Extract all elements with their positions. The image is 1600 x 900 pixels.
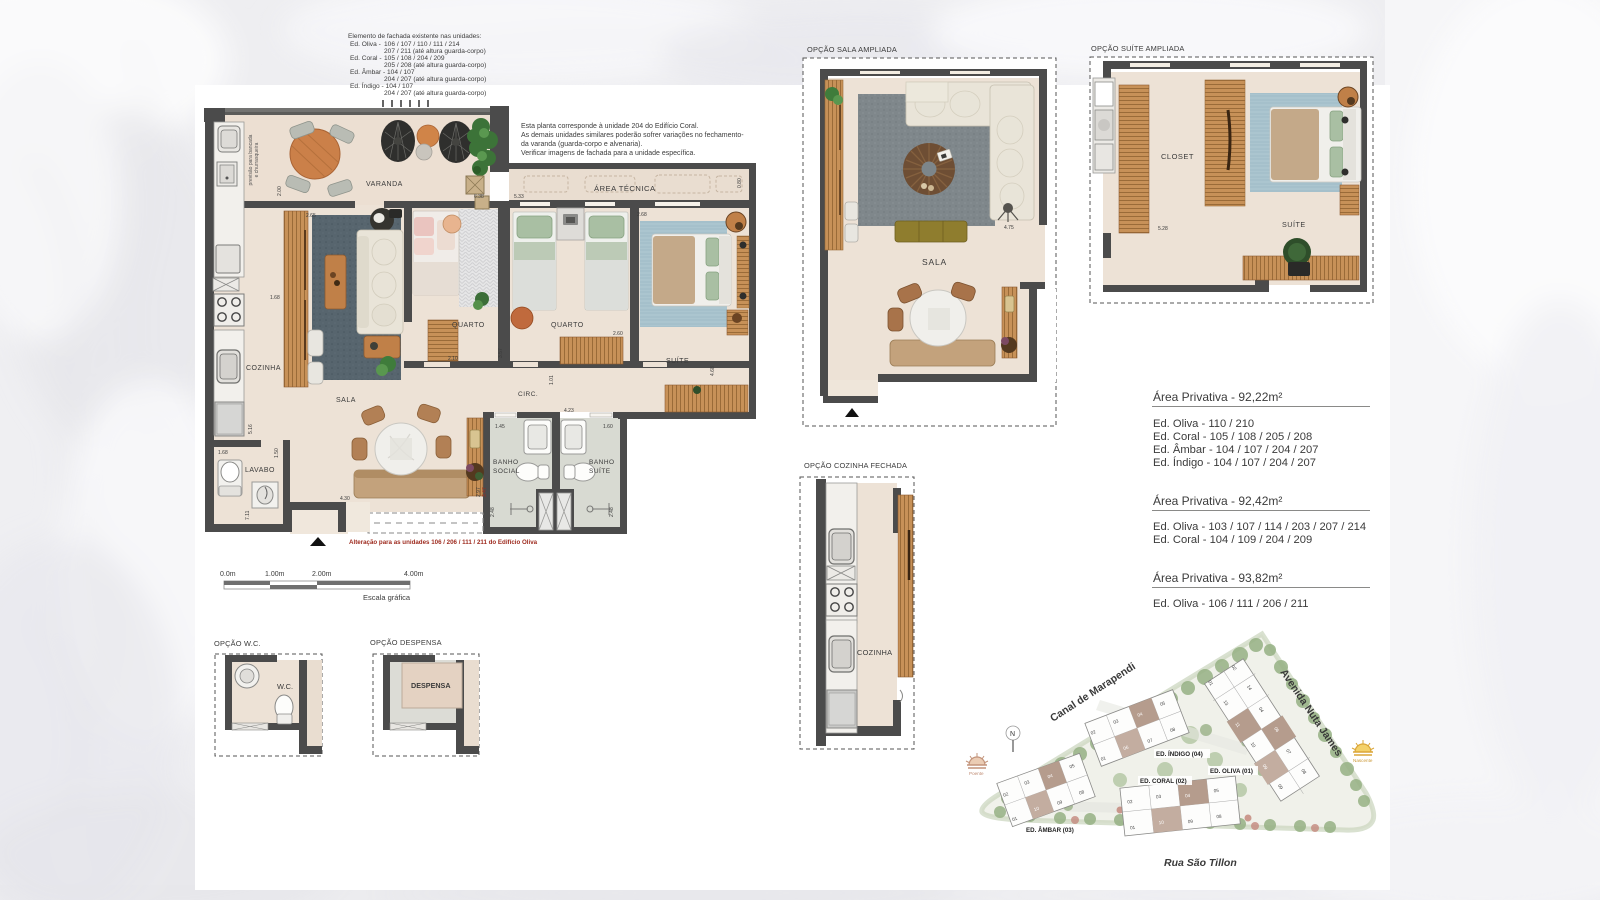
svg-text:SALA: SALA bbox=[922, 257, 947, 267]
svg-text:N: N bbox=[1010, 731, 1015, 738]
svg-text:5.28: 5.28 bbox=[1158, 226, 1168, 232]
svg-text:4.00m: 4.00m bbox=[404, 571, 424, 578]
svg-text:Escala gráfica: Escala gráfica bbox=[363, 593, 411, 602]
svg-text:0.0m: 0.0m bbox=[220, 571, 236, 578]
svg-text:05: 05 bbox=[1213, 788, 1219, 794]
svg-text:2.65: 2.65 bbox=[306, 213, 316, 219]
svg-text:2.60: 2.60 bbox=[613, 331, 623, 337]
svg-text:Ed. Coral - 104 / 109 / 204 /: Ed. Coral - 104 / 109 / 204 / 209 bbox=[1153, 534, 1312, 546]
svg-text:03: 03 bbox=[1156, 794, 1162, 800]
svg-text:Ed. Oliva - 110 / 210: Ed. Oliva - 110 / 210 bbox=[1153, 418, 1254, 430]
svg-text:4.75: 4.75 bbox=[1004, 225, 1014, 231]
svg-text:204 / 207 (até altura guarda-c: 204 / 207 (até altura guarda-corpo) bbox=[384, 90, 486, 97]
svg-text:4.30: 4.30 bbox=[340, 496, 350, 502]
svg-text:SUÍTE: SUÍTE bbox=[589, 466, 611, 475]
svg-text:0.80: 0.80 bbox=[737, 178, 743, 188]
svg-text:COZINHA: COZINHA bbox=[246, 365, 281, 372]
svg-text:Ed. Índigo - 104 / 107: Ed. Índigo - 104 / 107 bbox=[350, 81, 413, 90]
svg-text:ED. OLIVA (01): ED. OLIVA (01) bbox=[1210, 768, 1253, 775]
svg-text:CLOSET: CLOSET bbox=[1161, 152, 1194, 161]
svg-text:01: 01 bbox=[1130, 825, 1136, 831]
svg-text:W.C.: W.C. bbox=[277, 682, 293, 691]
svg-text:3.57: 3.57 bbox=[498, 348, 504, 358]
svg-text:3.47: 3.47 bbox=[482, 487, 488, 497]
svg-text:Área Privativa - 92,22m²: Área Privativa - 92,22m² bbox=[1153, 389, 1282, 404]
svg-text:SOCIAL: SOCIAL bbox=[493, 468, 520, 475]
svg-text:1.00m: 1.00m bbox=[265, 571, 285, 578]
svg-text:5.16: 5.16 bbox=[248, 424, 254, 434]
svg-text:2.00m: 2.00m bbox=[312, 571, 332, 578]
svg-text:1.68: 1.68 bbox=[270, 295, 280, 301]
svg-text:4.23: 4.23 bbox=[564, 408, 574, 414]
svg-text:Elemento de fachada existente: Elemento de fachada existente nas unidad… bbox=[348, 33, 482, 40]
svg-text:OPÇÃO W.C.: OPÇÃO W.C. bbox=[214, 639, 261, 648]
svg-text:4.68: 4.68 bbox=[710, 366, 716, 376]
svg-text:Ed. Índigo - 104 / 107 / 204 /: Ed. Índigo - 104 / 107 / 204 / 207 bbox=[1153, 456, 1316, 469]
svg-text:e churrasqueira: e churrasqueira bbox=[254, 142, 260, 177]
svg-text:Nascente: Nascente bbox=[1353, 758, 1373, 763]
svg-text:SUÍTE: SUÍTE bbox=[666, 356, 689, 365]
svg-text:Alteração para as unidades 106: Alteração para as unidades 106 / 206 / 1… bbox=[349, 539, 538, 546]
svg-text:Poente: Poente bbox=[969, 771, 984, 776]
svg-text:COZINHA: COZINHA bbox=[857, 648, 892, 657]
svg-text:Ed. Oliva - 106 / 111 / 206 /: Ed. Oliva - 106 / 111 / 206 / 211 bbox=[1153, 598, 1308, 610]
svg-text:Ed. Coral - 105 / 108 / 205 /: Ed. Coral - 105 / 108 / 205 / 208 bbox=[1153, 431, 1312, 443]
svg-text:6.38: 6.38 bbox=[474, 194, 484, 200]
svg-text:OPÇÃO SALA AMPLIADA: OPÇÃO SALA AMPLIADA bbox=[807, 45, 897, 54]
svg-text:CIRC.: CIRC. bbox=[518, 391, 538, 398]
svg-text:10: 10 bbox=[1158, 820, 1164, 826]
svg-text:7.11: 7.11 bbox=[245, 510, 251, 520]
svg-text:1.01: 1.01 bbox=[549, 375, 555, 385]
svg-text:207 / 211 (até altura guarda-c: 207 / 211 (até altura guarda-corpo) bbox=[384, 48, 486, 55]
svg-text:Ed. Oliva - 103 / 107 / 114 /: Ed. Oliva - 103 / 107 / 114 / 203 / 207 … bbox=[1153, 521, 1366, 533]
svg-text:ED. CORAL (02): ED. CORAL (02) bbox=[1140, 778, 1187, 785]
svg-text:09: 09 bbox=[1188, 819, 1194, 825]
svg-text:DESPENSA: DESPENSA bbox=[411, 681, 451, 690]
svg-text:08: 08 bbox=[1216, 814, 1222, 820]
svg-text:QUARTO: QUARTO bbox=[452, 322, 485, 329]
svg-text:ED. ÂMBAR (03): ED. ÂMBAR (03) bbox=[1026, 827, 1074, 834]
svg-text:2.68: 2.68 bbox=[637, 212, 647, 218]
svg-text:da varanda (guarda-corpo e alv: da varanda (guarda-corpo e alvenaria). bbox=[521, 141, 642, 148]
svg-text:5.33: 5.33 bbox=[514, 194, 524, 200]
svg-text:Verificar imagens de fachada p: Verificar imagens de fachada para a unid… bbox=[521, 150, 695, 157]
svg-text:Ed. Âmbar - 104 / 107: Ed. Âmbar - 104 / 107 bbox=[350, 67, 415, 76]
svg-text:2.48: 2.48 bbox=[490, 507, 496, 517]
svg-text:OPÇÃO SUÍTE AMPLIADA: OPÇÃO SUÍTE AMPLIADA bbox=[1091, 44, 1185, 53]
svg-text:SUÍTE: SUÍTE bbox=[1282, 220, 1306, 229]
svg-text:1.60: 1.60 bbox=[603, 424, 613, 430]
svg-text:LAVABO: LAVABO bbox=[245, 467, 275, 474]
svg-text:Rua São Tillon: Rua São Tillon bbox=[1164, 857, 1237, 869]
svg-text:2.10: 2.10 bbox=[448, 356, 458, 362]
svg-text:106 / 107 / 110 / 111 / 214: 106 / 107 / 110 / 111 / 214 bbox=[384, 41, 460, 48]
svg-text:Área Privativa - 92,42m²: Área Privativa - 92,42m² bbox=[1153, 493, 1282, 508]
svg-text:205 / 208 (até altura guarda-c: 205 / 208 (até altura guarda-corpo) bbox=[384, 62, 486, 69]
svg-text:1.50: 1.50 bbox=[274, 448, 280, 458]
svg-text:OPÇÃO DESPENSA: OPÇÃO DESPENSA bbox=[370, 638, 442, 647]
svg-text:02: 02 bbox=[1127, 799, 1133, 805]
svg-text:QUARTO: QUARTO bbox=[551, 322, 584, 329]
svg-text:04: 04 bbox=[1185, 793, 1191, 799]
svg-text:Área Privativa - 93,82m²: Área Privativa - 93,82m² bbox=[1153, 570, 1282, 585]
svg-text:OPÇÃO COZINHA FECHADA: OPÇÃO COZINHA FECHADA bbox=[804, 461, 907, 470]
svg-text:BANHO: BANHO bbox=[493, 459, 519, 466]
svg-text:204 / 207 (até altura guarda-c: 204 / 207 (até altura guarda-corpo) bbox=[384, 76, 486, 83]
svg-text:Ed. Oliva -: Ed. Oliva - bbox=[350, 41, 381, 48]
svg-text:VARANDA: VARANDA bbox=[366, 181, 403, 188]
svg-text:ED. ÍNDIGO (04): ED. ÍNDIGO (04) bbox=[1156, 750, 1203, 758]
svg-text:Ed. Coral -: Ed. Coral - bbox=[350, 55, 382, 62]
svg-text:BANHO: BANHO bbox=[589, 459, 615, 466]
svg-text:Ed. Âmbar - 104 / 107 / 204 /: Ed. Âmbar - 104 / 107 / 204 / 207 bbox=[1153, 443, 1318, 456]
svg-text:ÁREA TÉCNICA: ÁREA TÉCNICA bbox=[594, 184, 656, 193]
svg-text:2.00: 2.00 bbox=[277, 186, 283, 196]
svg-text:SALA: SALA bbox=[336, 397, 356, 404]
svg-text:As demais unidades similares p: As demais unidades similares poderão sof… bbox=[521, 132, 744, 139]
svg-text:1.45: 1.45 bbox=[495, 424, 505, 430]
svg-text:1.68: 1.68 bbox=[218, 450, 228, 456]
svg-text:2.48: 2.48 bbox=[609, 507, 615, 517]
svg-text:105 / 108 / 204 / 209: 105 / 108 / 204 / 209 bbox=[384, 55, 445, 62]
svg-text:Esta planta corresponde à unid: Esta planta corresponde à unidade 204 do… bbox=[521, 123, 699, 130]
